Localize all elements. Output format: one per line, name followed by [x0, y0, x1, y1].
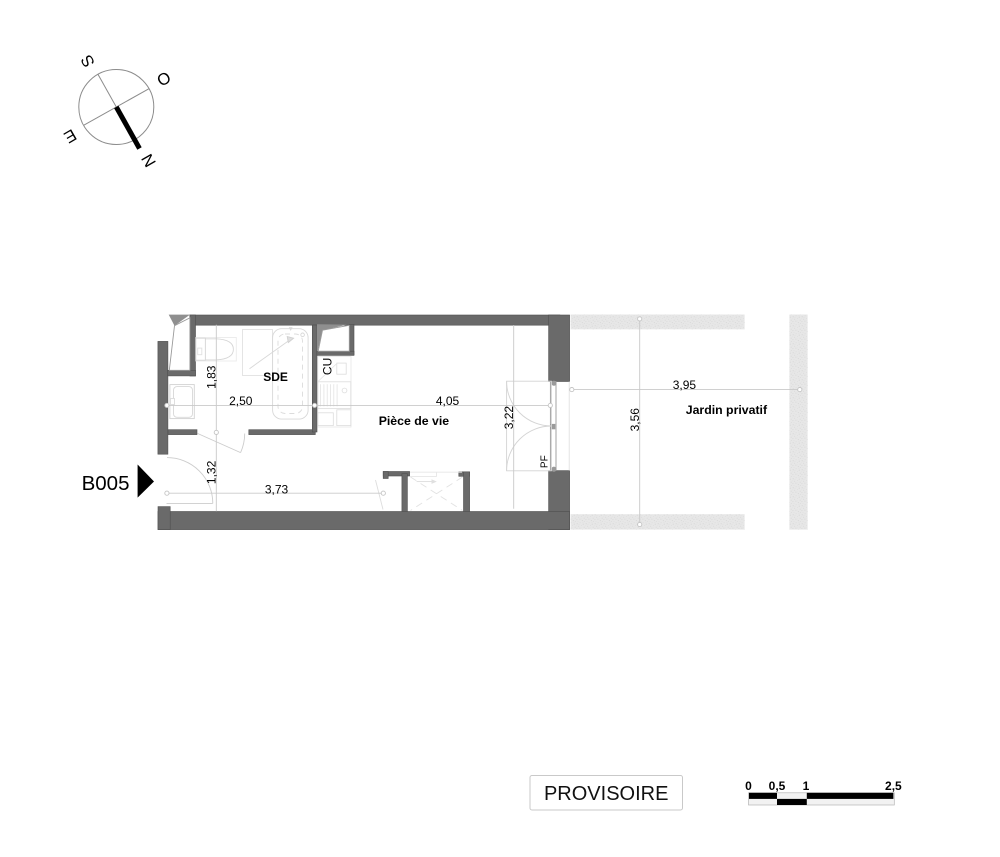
svg-text:3,56: 3,56	[628, 408, 642, 432]
svg-text:0,5: 0,5	[769, 779, 786, 793]
svg-text:SDE: SDE	[263, 370, 288, 384]
svg-text:PROVISOIRE: PROVISOIRE	[544, 783, 668, 805]
svg-text:0: 0	[745, 779, 752, 793]
svg-text:3,95: 3,95	[673, 378, 697, 392]
svg-text:1: 1	[803, 779, 810, 793]
svg-text:3,73: 3,73	[265, 483, 289, 497]
svg-text:1,83: 1,83	[205, 365, 219, 389]
svg-text:Jardin privatif: Jardin privatif	[686, 403, 768, 417]
svg-text:CU: CU	[320, 358, 334, 375]
svg-text:B005: B005	[82, 472, 130, 495]
svg-text:2,5: 2,5	[885, 779, 902, 793]
svg-text:1,32: 1,32	[205, 460, 219, 484]
svg-text:2,50: 2,50	[229, 394, 253, 408]
svg-text:PF: PF	[540, 455, 551, 468]
svg-text:3,22: 3,22	[502, 406, 516, 430]
svg-text:Pièce de vie: Pièce de vie	[379, 414, 450, 428]
svg-text:4,05: 4,05	[436, 394, 460, 408]
